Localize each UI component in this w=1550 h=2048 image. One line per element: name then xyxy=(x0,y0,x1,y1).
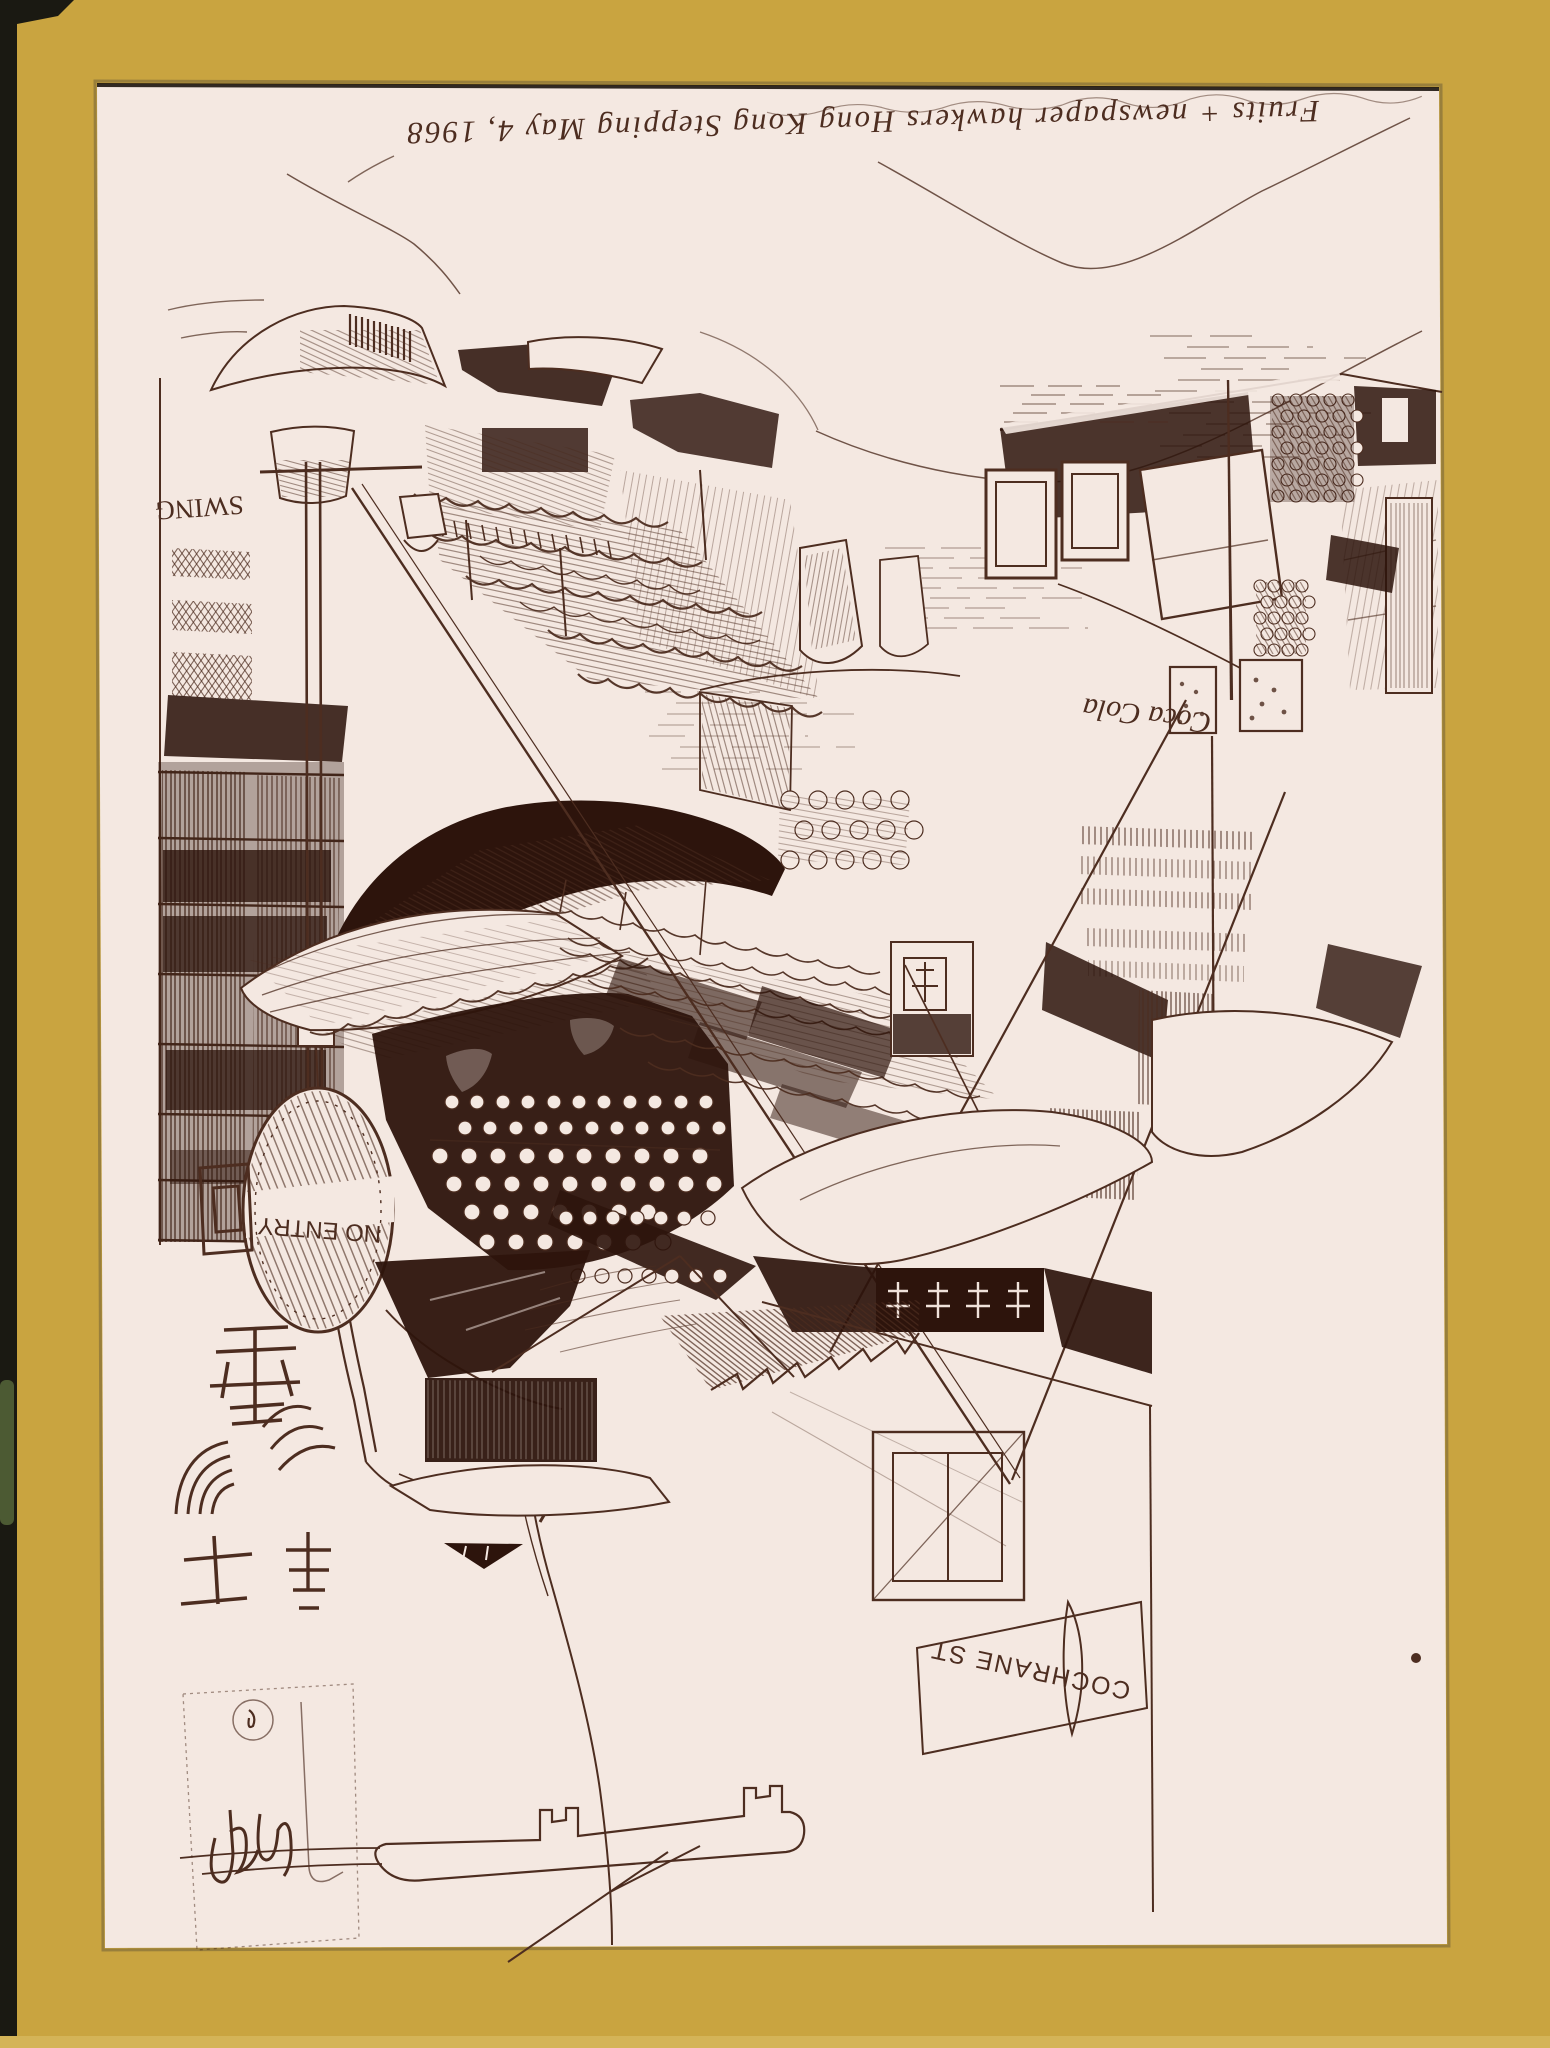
svg-text:SWING: SWING xyxy=(154,490,244,526)
